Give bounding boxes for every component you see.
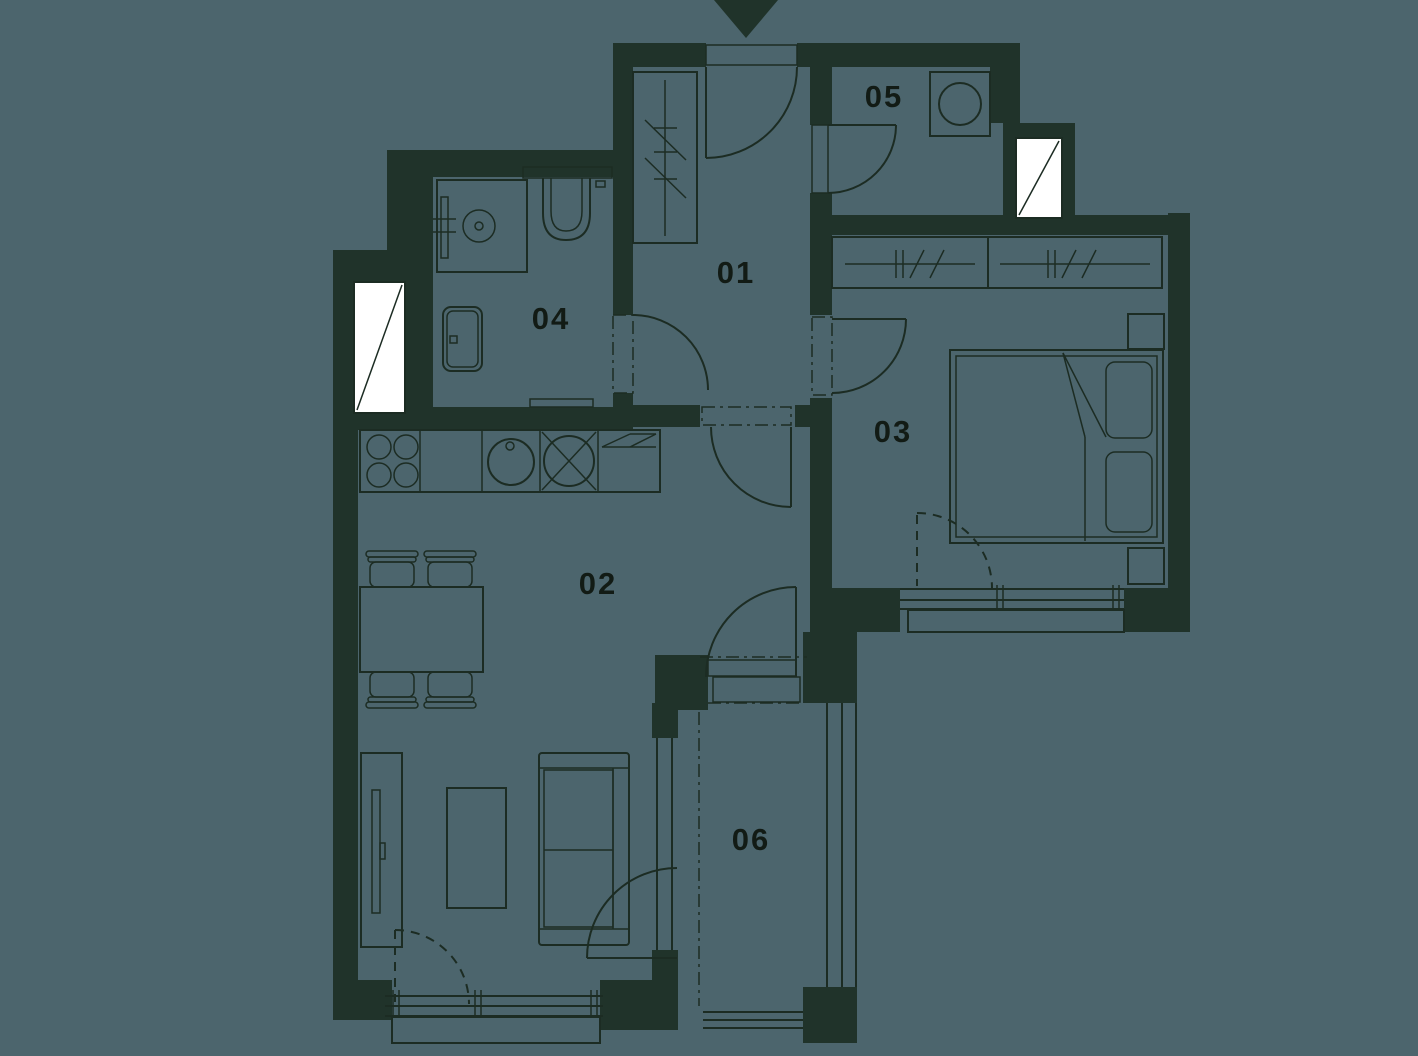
dining-set xyxy=(360,551,483,708)
living-bottom-window xyxy=(385,990,603,1043)
room-label-02: 02 xyxy=(579,566,617,601)
coffee-table xyxy=(447,788,506,908)
shower xyxy=(437,180,527,272)
room-label-05: 05 xyxy=(865,79,903,114)
door-hall-living xyxy=(702,407,791,507)
hall-wardrobe xyxy=(633,72,697,243)
washing-machine xyxy=(930,72,990,136)
glazing-and-railings xyxy=(385,585,1124,1043)
bedroom-wardrobe xyxy=(832,237,1162,288)
loggia-east-railing xyxy=(827,703,856,987)
window-top-right xyxy=(1016,138,1062,218)
tv-unit xyxy=(361,753,402,947)
kitchen-sink xyxy=(488,439,534,485)
kitchen-counter xyxy=(360,430,660,492)
entrance-door xyxy=(706,45,797,158)
entrance-arrow-icon xyxy=(714,0,778,38)
nightstand xyxy=(1128,314,1164,349)
bathroom-sink xyxy=(443,307,482,371)
pillow xyxy=(1106,362,1152,438)
loggia-south-railing xyxy=(703,1012,803,1028)
cabinet-symbol xyxy=(602,434,656,447)
doors xyxy=(395,45,992,1004)
dining-chair xyxy=(366,551,418,587)
toilet xyxy=(523,167,612,240)
crossed-sink-icon xyxy=(542,432,596,490)
pillow xyxy=(1106,452,1152,532)
floorplan-svg: 01 02 03 04 05 06 xyxy=(0,0,1418,1056)
bedroom-bottom-window xyxy=(900,585,1124,632)
floorplan-page: 01 02 03 04 05 06 xyxy=(0,0,1418,1056)
door-room-05 xyxy=(812,125,896,193)
dining-chair xyxy=(366,672,418,708)
door-loggia-north xyxy=(700,587,807,703)
nightstand xyxy=(1128,548,1164,584)
bathroom-shelf xyxy=(530,399,593,407)
door-bathroom xyxy=(613,315,708,393)
room-label-06: 06 xyxy=(732,822,770,857)
room-label-01: 01 xyxy=(717,255,755,290)
hob-icon xyxy=(367,435,418,487)
room-label-03: 03 xyxy=(874,414,912,449)
balcony-door-swing-bedroom xyxy=(917,513,992,588)
window-bathroom xyxy=(354,282,405,413)
room-label-04: 04 xyxy=(532,301,570,336)
dining-chair xyxy=(424,672,476,708)
dining-chair xyxy=(424,551,476,587)
double-bed xyxy=(950,350,1163,543)
sofa xyxy=(539,753,629,945)
dining-table xyxy=(360,587,483,672)
balcony-door-swing-living xyxy=(395,930,469,1004)
door-bedroom xyxy=(812,317,906,395)
